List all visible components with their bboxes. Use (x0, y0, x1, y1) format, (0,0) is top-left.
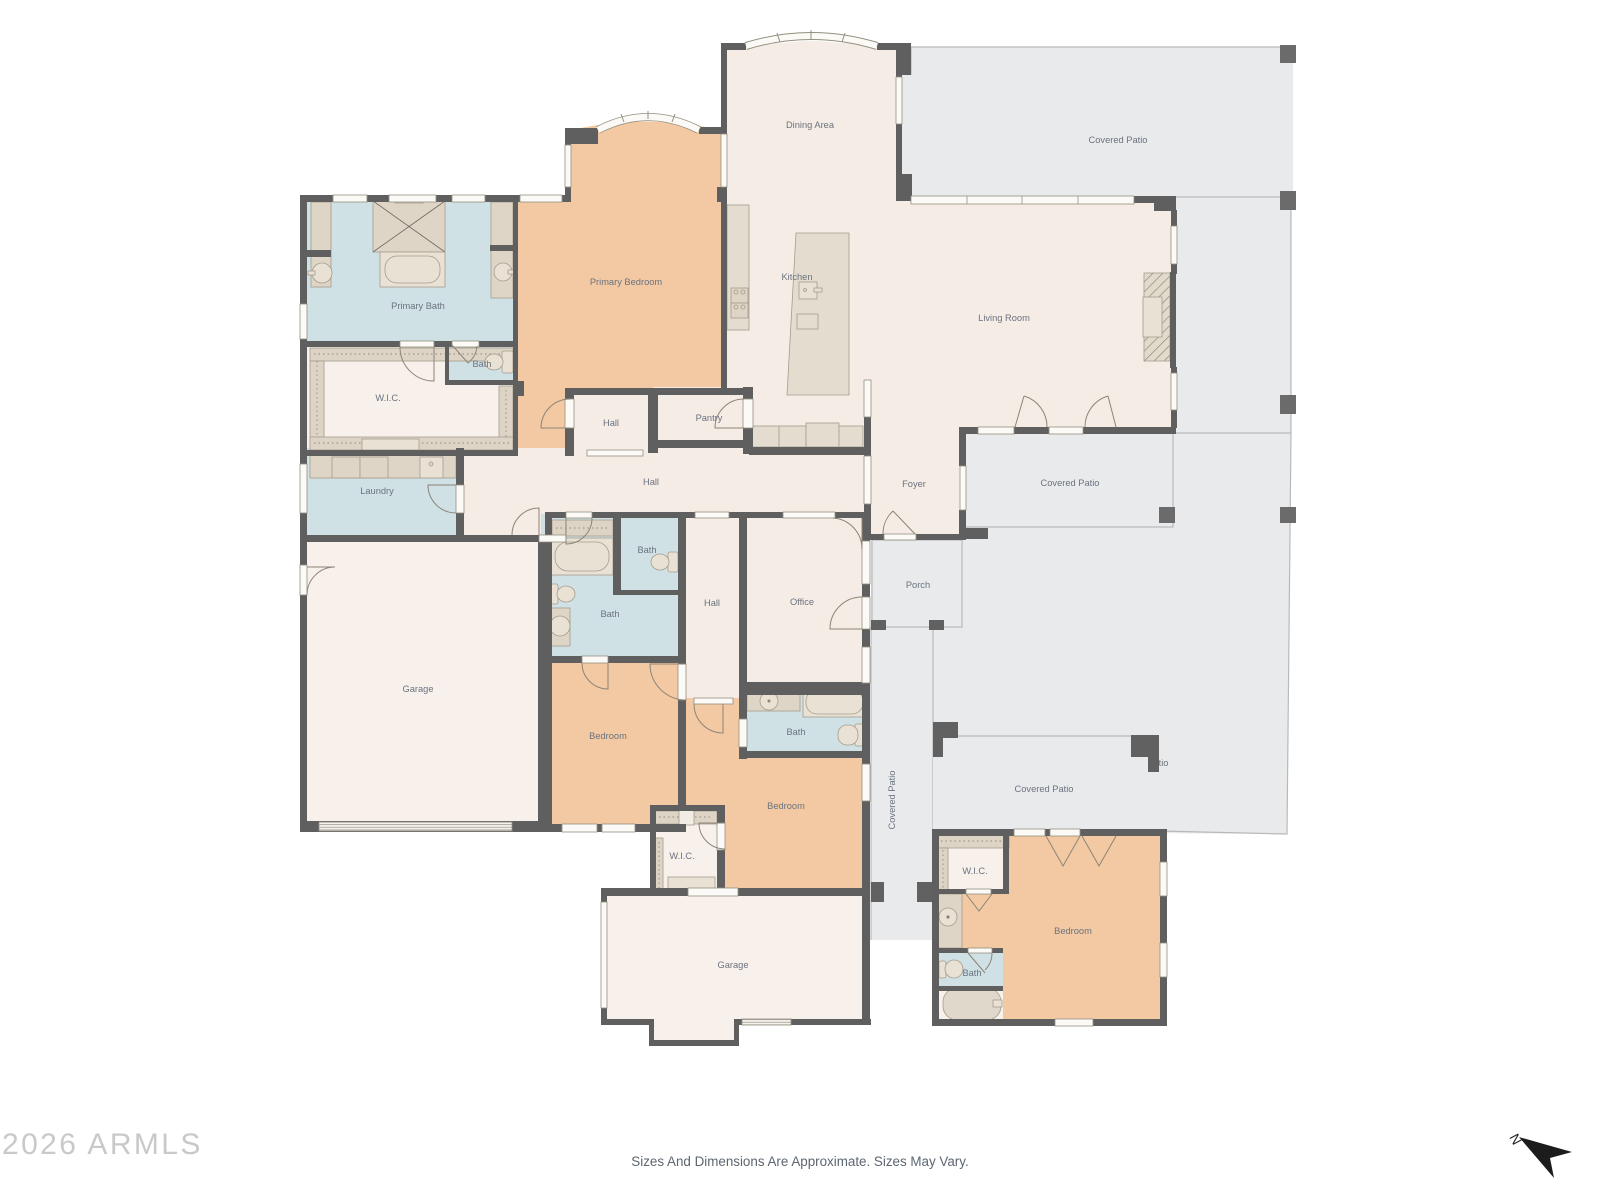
svg-text:Office: Office (790, 597, 814, 607)
svg-text:Bedroom: Bedroom (589, 731, 627, 741)
svg-text:Sizes And Dimensions Are Appro: Sizes And Dimensions Are Approximate. Si… (631, 1154, 968, 1169)
svg-text:Dining Area: Dining Area (786, 120, 835, 130)
svg-text:W.I.C.: W.I.C. (669, 851, 694, 861)
svg-text:Bedroom: Bedroom (767, 801, 805, 811)
svg-text:Bath: Bath (600, 609, 619, 619)
svg-text:Bath: Bath (786, 727, 805, 737)
svg-text:Hall: Hall (704, 598, 720, 608)
svg-text:Hall: Hall (603, 418, 619, 428)
svg-text:W.I.C.: W.I.C. (375, 393, 400, 403)
svg-text:Foyer: Foyer (902, 479, 926, 489)
svg-text:Laundry: Laundry (360, 486, 394, 496)
svg-text:Covered Patio: Covered Patio (1089, 135, 1148, 145)
svg-text:Living Room: Living Room (978, 313, 1030, 323)
svg-text:Covered Patio: Covered Patio (887, 771, 897, 830)
svg-text:Kitchen: Kitchen (781, 272, 812, 282)
svg-text:Hall: Hall (643, 477, 659, 487)
svg-text:Bath: Bath (637, 545, 656, 555)
svg-text:Bath: Bath (962, 968, 981, 978)
svg-text:Pantry: Pantry (696, 413, 723, 423)
svg-text:Bath: Bath (472, 359, 491, 369)
svg-text:N: N (1506, 1131, 1525, 1147)
svg-text:2026 ARMLS: 2026 ARMLS (2, 1128, 203, 1161)
svg-text:W.I.C.: W.I.C. (962, 866, 987, 876)
svg-text:Covered Patio: Covered Patio (1041, 478, 1100, 488)
svg-text:Garage: Garage (402, 684, 433, 694)
svg-text:Bedroom: Bedroom (1054, 926, 1092, 936)
svg-text:Primary Bedroom: Primary Bedroom (590, 277, 663, 287)
svg-text:Covered Patio: Covered Patio (1015, 784, 1074, 794)
svg-text:Primary Bath: Primary Bath (391, 301, 445, 311)
svg-text:Porch: Porch (906, 580, 930, 590)
svg-text:Garage: Garage (717, 960, 748, 970)
